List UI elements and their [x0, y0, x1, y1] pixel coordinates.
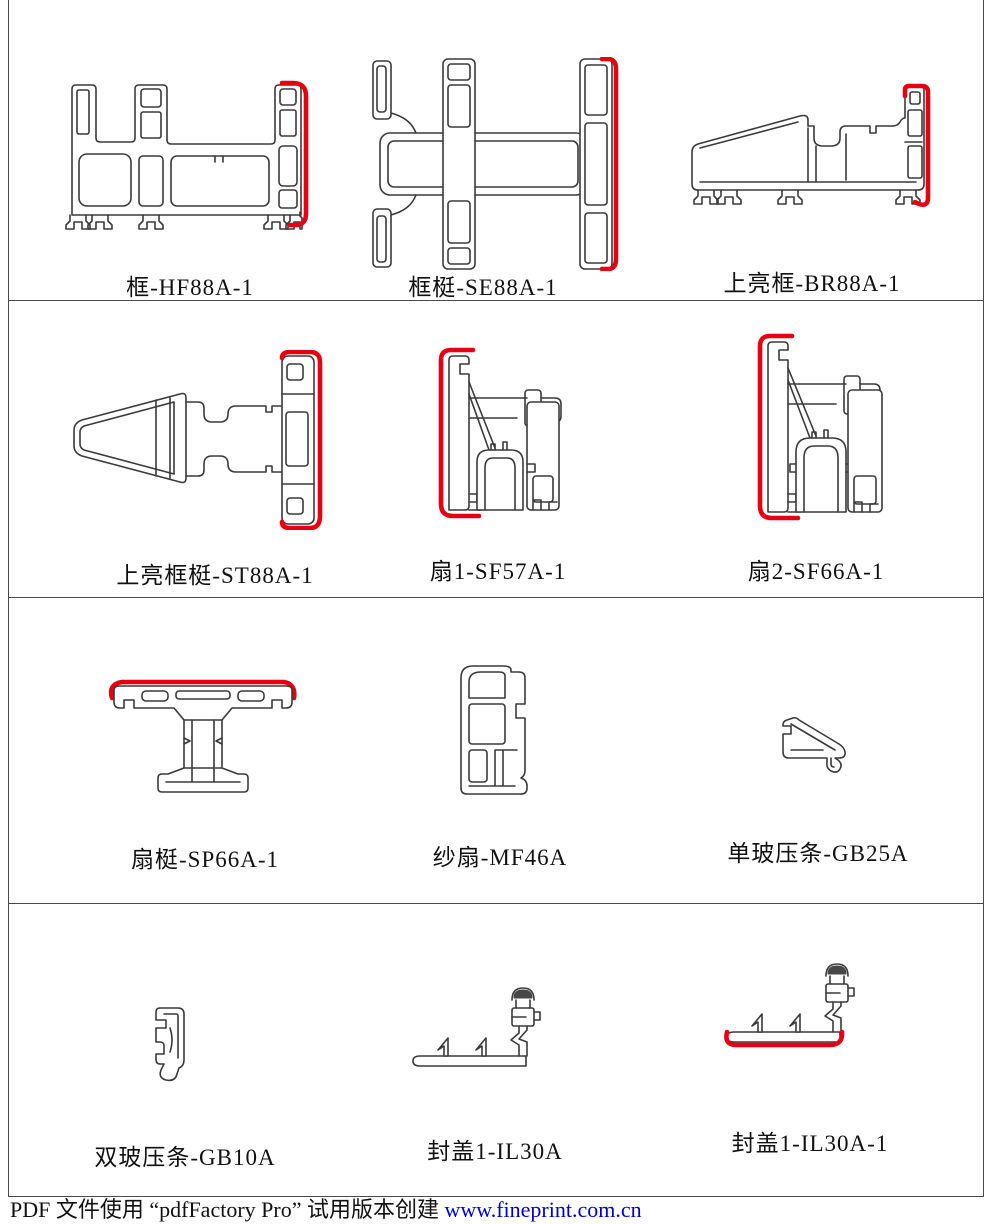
profile-label: 封盖1-IL30A	[427, 1132, 562, 1166]
profile-drawing-il30a-1	[722, 958, 872, 1058]
profile-drawing-se88a-1	[360, 57, 620, 271]
profile-label: 上亮框梃-ST88A-1	[116, 556, 313, 590]
row-divider-3	[8, 903, 984, 904]
row-divider-2	[8, 597, 984, 598]
pdf-watermark: PDF 文件使用 “pdfFactory Pro” 试用版本创建 www.fin…	[10, 1192, 642, 1224]
profile-label: 上亮框-BR88A-1	[723, 264, 900, 298]
profile-label: 框-HF88A-1	[126, 268, 254, 302]
frame-left-border	[8, 0, 9, 1196]
profile-label: 双玻压条-GB10A	[94, 1138, 275, 1172]
profile-label: 框梃-SE88A-1	[408, 268, 557, 302]
profile-label: 扇梃-SP66A-1	[131, 840, 279, 874]
watermark-text: PDF 文件使用 “pdfFactory Pro” 试用版本创建	[10, 1197, 444, 1222]
profile-drawing-sf57a-1	[433, 346, 573, 522]
profile-drawing-hf88a-1	[55, 76, 330, 246]
profile-drawing-sp66a-1	[106, 674, 300, 798]
profile-drawing-il30a	[408, 982, 558, 1078]
profile-drawing-gb25a	[773, 712, 863, 784]
profile-drawing-sf66a-1	[752, 332, 894, 524]
profile-label: 封盖1-IL30A-1	[732, 1124, 889, 1158]
frame-right-border	[983, 0, 984, 1196]
profile-label: 扇1-SF57A-1	[430, 552, 567, 586]
catalog-page: { "page": { "background": "#ffffff", "ou…	[0, 0, 986, 1214]
profile-drawing-mf46a	[455, 658, 547, 802]
profile-label: 扇2-SF66A-1	[748, 552, 885, 586]
profile-drawing-br88a-1	[686, 80, 942, 232]
profile-label: 纱扇-MF46A	[433, 838, 568, 872]
watermark-link[interactable]: www.fineprint.com.cn	[444, 1197, 641, 1222]
profile-drawing-st88a-1	[70, 350, 330, 530]
profile-drawing-gb10a	[146, 1004, 196, 1092]
profile-label: 单玻压条-GB25A	[727, 834, 908, 868]
